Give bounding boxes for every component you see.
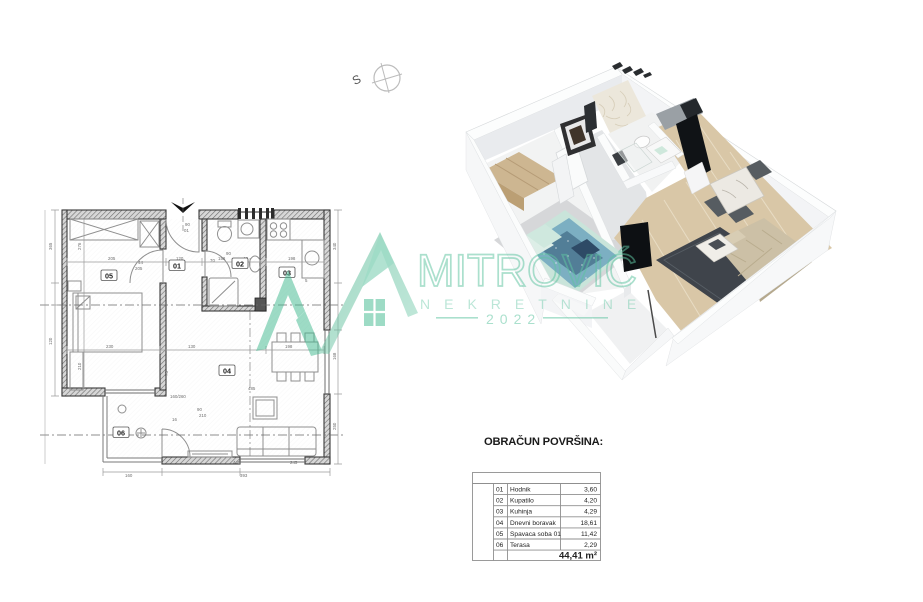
svg-text:198: 198	[288, 256, 296, 261]
svg-text:01: 01	[173, 261, 181, 270]
svg-text:340: 340	[332, 242, 337, 250]
svg-text:01: 01	[496, 487, 504, 494]
svg-text:250: 250	[332, 422, 337, 430]
svg-text:Kuhinja: Kuhinja	[510, 509, 532, 516]
svg-text:06: 06	[496, 542, 504, 549]
svg-text:205: 205	[108, 256, 116, 261]
svg-text:Hodnik: Hodnik	[510, 487, 531, 494]
svg-text:160: 160	[125, 473, 133, 478]
svg-text:05: 05	[105, 271, 113, 280]
svg-text:90: 90	[197, 407, 202, 412]
svg-text:230: 230	[106, 344, 114, 349]
svg-text:03: 03	[496, 509, 504, 516]
svg-text:04: 04	[496, 520, 504, 527]
svg-text:2022: 2022	[486, 311, 541, 327]
svg-text:168: 168	[332, 352, 337, 360]
svg-text:OBRAČUN POVRŠINA:: OBRAČUN POVRŠINA:	[484, 435, 603, 448]
svg-text:210: 210	[77, 362, 82, 370]
svg-text:90: 90	[226, 251, 231, 256]
svg-text:Terasa: Terasa	[510, 542, 530, 549]
svg-text:393: 393	[240, 473, 248, 478]
svg-text:16: 16	[172, 417, 177, 422]
svg-text:2,29: 2,29	[584, 542, 597, 549]
svg-text:Spavaca soba 01: Spavaca soba 01	[510, 531, 561, 538]
svg-text:485: 485	[248, 386, 256, 391]
svg-text:120: 120	[48, 337, 53, 345]
svg-text:44: 44	[138, 260, 143, 265]
svg-text:06: 06	[117, 428, 125, 437]
svg-text:4,29: 4,29	[584, 509, 597, 516]
svg-text:18,61: 18,61	[580, 520, 597, 527]
svg-text:365: 365	[48, 242, 53, 250]
svg-text:Dnevni boravak: Dnevni boravak	[510, 520, 557, 527]
svg-text:158: 158	[218, 256, 226, 261]
svg-text:4,20: 4,20	[584, 498, 597, 505]
svg-text:01: 01	[184, 228, 189, 233]
svg-text:73: 73	[164, 371, 169, 376]
svg-text:198: 198	[285, 344, 293, 349]
svg-text:3,60: 3,60	[584, 487, 597, 494]
svg-text:90: 90	[185, 222, 190, 227]
svg-text:MITROVIĆ: MITROVIĆ	[417, 245, 637, 296]
svg-text:245: 245	[290, 460, 298, 465]
svg-text:276: 276	[77, 242, 82, 250]
svg-text:05: 05	[496, 531, 504, 538]
svg-text:44,41 m²: 44,41 m²	[559, 551, 597, 562]
svg-text:70: 70	[210, 258, 215, 263]
svg-text:04: 04	[223, 366, 231, 375]
svg-text:S: S	[350, 72, 363, 88]
svg-text:02: 02	[236, 259, 244, 268]
svg-text:02: 02	[496, 498, 504, 505]
svg-text:205: 205	[135, 266, 143, 271]
svg-text:130: 130	[188, 344, 196, 349]
svg-text:11,42: 11,42	[581, 531, 597, 538]
svg-text:Kupatilo: Kupatilo	[510, 498, 534, 505]
svg-text:NEKRETNINE: NEKRETNINE	[420, 296, 650, 312]
svg-text:210: 210	[199, 413, 207, 418]
svg-text:160/260: 160/260	[170, 394, 186, 399]
svg-text:445: 445	[233, 460, 241, 465]
